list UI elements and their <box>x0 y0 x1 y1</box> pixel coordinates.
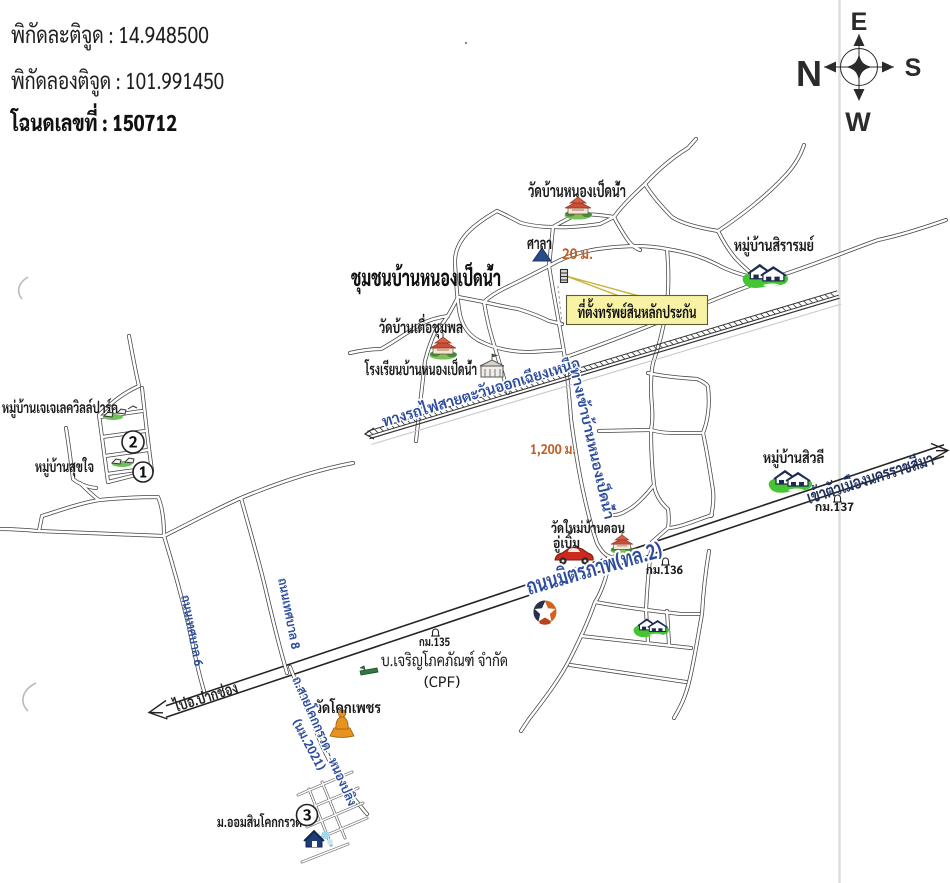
svg-text:S: S <box>905 54 922 82</box>
svg-text:E: E <box>851 8 868 36</box>
svg-text:W: W <box>845 107 871 137</box>
svg-text:N: N <box>796 53 822 94</box>
